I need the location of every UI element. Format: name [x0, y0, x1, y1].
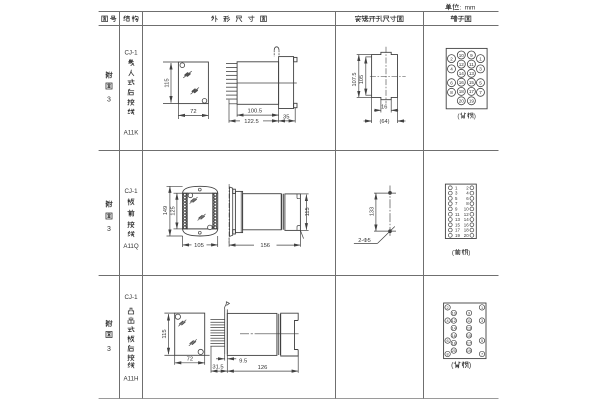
- svg-text:72: 72: [187, 357, 193, 363]
- svg-text:2-Φ5: 2-Φ5: [358, 238, 371, 244]
- svg-text:16: 16: [381, 104, 387, 110]
- svg-text:14: 14: [452, 326, 456, 330]
- svg-text:3: 3: [481, 319, 483, 323]
- svg-text:3: 3: [107, 226, 111, 233]
- svg-text:133: 133: [369, 207, 375, 216]
- svg-text:122.5: 122.5: [244, 119, 259, 125]
- svg-text:20: 20: [459, 99, 465, 104]
- svg-text:3: 3: [479, 67, 482, 72]
- svg-text:19: 19: [455, 233, 460, 238]
- svg-text:11: 11: [455, 212, 460, 217]
- svg-text:156: 156: [260, 243, 270, 249]
- svg-text:35: 35: [283, 114, 289, 120]
- svg-text:A11K: A11K: [124, 130, 140, 137]
- svg-text:5: 5: [479, 81, 482, 86]
- svg-text:15: 15: [469, 80, 475, 85]
- svg-text:7: 7: [479, 90, 482, 95]
- svg-text:12: 12: [452, 319, 456, 323]
- svg-text:105: 105: [194, 243, 204, 249]
- svg-text:7: 7: [481, 352, 483, 356]
- svg-text:12: 12: [459, 62, 465, 67]
- svg-text:4: 4: [450, 67, 453, 72]
- svg-text:1: 1: [479, 56, 482, 61]
- svg-text:31.5: 31.5: [212, 364, 223, 370]
- svg-text:10: 10: [452, 311, 456, 315]
- svg-text:9.5: 9.5: [239, 358, 247, 364]
- svg-text:18: 18: [464, 228, 469, 233]
- svg-text:): ): [468, 249, 470, 256]
- svg-text:18: 18: [452, 341, 456, 345]
- svg-text:126: 126: [258, 365, 268, 371]
- svg-text:14: 14: [459, 71, 465, 76]
- svg-text:115: 115: [305, 207, 311, 216]
- svg-text:19: 19: [469, 99, 475, 104]
- svg-text:A11H: A11H: [123, 375, 138, 382]
- svg-text:3: 3: [107, 97, 111, 104]
- svg-text:4: 4: [447, 319, 449, 323]
- svg-text:2: 2: [450, 56, 453, 61]
- svg-text:CJ-1: CJ-1: [124, 188, 138, 195]
- svg-text:72: 72: [190, 109, 196, 115]
- svg-text:115: 115: [162, 329, 168, 338]
- svg-text:A11Q: A11Q: [123, 243, 139, 250]
- svg-text:9: 9: [470, 53, 473, 58]
- svg-text:2: 2: [447, 306, 449, 310]
- svg-text:11: 11: [469, 62, 474, 67]
- svg-text:mm: mm: [465, 5, 476, 12]
- svg-text:17: 17: [467, 341, 471, 345]
- svg-text:8: 8: [450, 90, 453, 95]
- svg-text:17: 17: [455, 228, 460, 233]
- svg-text:10: 10: [464, 207, 469, 212]
- svg-text:15: 15: [467, 334, 471, 338]
- svg-text:6: 6: [450, 81, 453, 86]
- svg-text:1: 1: [481, 306, 483, 310]
- svg-text:12: 12: [464, 212, 469, 217]
- svg-text:CJ-1: CJ-1: [124, 49, 138, 56]
- svg-text:6: 6: [447, 339, 449, 343]
- svg-text:CJ-1: CJ-1: [124, 294, 138, 301]
- svg-text:11: 11: [467, 319, 471, 323]
- svg-text:13: 13: [467, 326, 471, 330]
- svg-text:8: 8: [447, 352, 449, 356]
- svg-text:20: 20: [452, 349, 456, 353]
- svg-text:115: 115: [164, 78, 170, 87]
- svg-text:20: 20: [464, 233, 469, 238]
- svg-text:3: 3: [107, 346, 111, 353]
- svg-text:16: 16: [459, 80, 465, 85]
- svg-text:125: 125: [170, 206, 176, 215]
- svg-text:9: 9: [468, 311, 470, 315]
- svg-text:149: 149: [163, 206, 169, 215]
- svg-text:107.5: 107.5: [352, 73, 358, 87]
- svg-text:13: 13: [455, 217, 460, 222]
- svg-text:17: 17: [469, 89, 475, 94]
- svg-text:): ): [474, 113, 476, 120]
- svg-text:100.5: 100.5: [248, 109, 263, 115]
- svg-text:16: 16: [452, 334, 456, 338]
- svg-text:19: 19: [467, 349, 471, 353]
- svg-text:10: 10: [459, 53, 465, 58]
- svg-text:5: 5: [481, 339, 483, 343]
- svg-text::: :: [460, 5, 462, 12]
- svg-text:18: 18: [459, 89, 465, 94]
- svg-text:): ): [469, 362, 471, 369]
- svg-text:105: 105: [359, 75, 365, 84]
- svg-text:13: 13: [469, 71, 475, 76]
- svg-text:14: 14: [464, 217, 469, 222]
- svg-text:(64): (64): [380, 119, 390, 125]
